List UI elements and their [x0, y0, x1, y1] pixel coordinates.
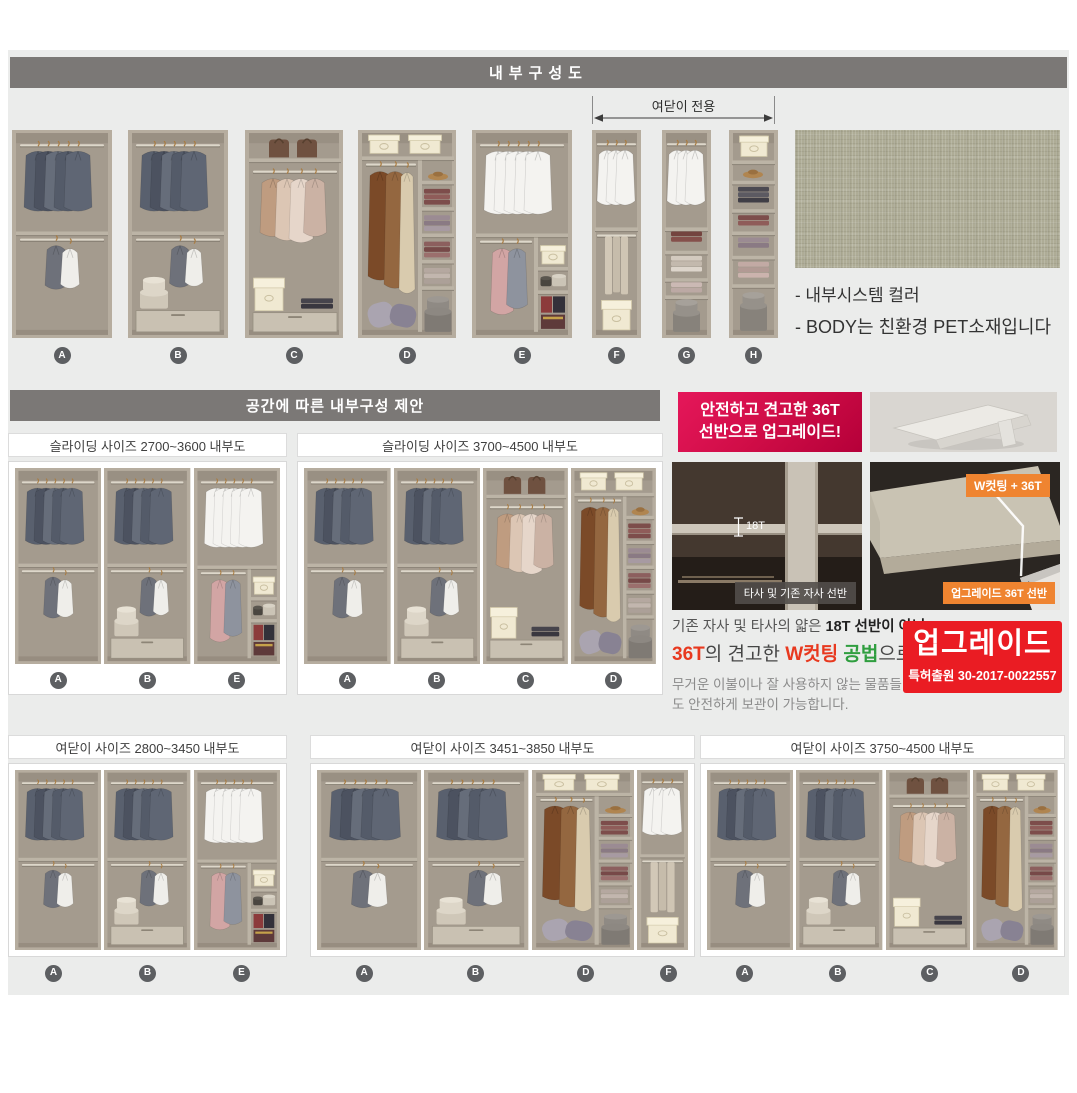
wardrobe-labels: ABCD — [700, 963, 1065, 983]
proposal-title: 여닫이 사이즈 2800~3450 내부도 — [8, 735, 287, 759]
desc-note: 무거운 이불이나 잘 사용하지 않는 물품들도 안전하게 보관이 가능합니다. — [672, 675, 904, 714]
unit-label-A: A — [356, 965, 373, 982]
unit-label-B: B — [139, 965, 156, 982]
section-header-internal-config: 내부구성도 — [10, 57, 1067, 88]
unit-label-B: B — [467, 965, 484, 982]
wardrobe-unit-A — [15, 468, 101, 664]
wcutting-badge: W컷팅 + 36T — [966, 474, 1050, 497]
swatch-note-body: - BODY는 친환경 PET소재입니다 — [795, 313, 1051, 339]
wardrobe-unit-D — [532, 770, 634, 950]
section-header-proposal-label: 공간에 따른 내부구성 제안 — [246, 395, 424, 416]
unit-label-E: E — [228, 672, 245, 689]
desc-segment: W컷팅 — [785, 644, 838, 665]
new-shelf-caption: 업그레이드 36T 선반 — [943, 582, 1055, 604]
unit-label-F: F — [660, 965, 677, 982]
unit-label-B: B — [170, 347, 187, 364]
unit-label-cell: A — [700, 963, 790, 983]
desc-segment: 36T — [672, 644, 705, 665]
wardrobe-unit-B — [104, 770, 190, 950]
annotation-tick-right — [774, 96, 775, 124]
unit-label-D: D — [399, 347, 416, 364]
upgrade-banner-line2: 선반으로 업그레이드! — [699, 422, 841, 444]
wardrobe-unit-D — [358, 130, 456, 338]
section-header-proposal: 공간에 따른 내부구성 제안 — [10, 390, 660, 421]
proposal-body: ABCD — [297, 461, 663, 695]
desc-segment: 의 견고한 — [705, 644, 785, 665]
wardrobe-unit-B — [796, 770, 882, 950]
proposal-body: ABE — [8, 461, 287, 695]
interior-color-swatch — [795, 130, 1060, 268]
unit-label-E: E — [233, 965, 250, 982]
shelf-bracket-photo — [870, 392, 1057, 452]
unit-label-A: A — [339, 672, 356, 689]
proposal-title: 슬라이딩 사이즈 2700~3600 내부도 — [8, 433, 287, 457]
unit-label-A: A — [54, 347, 71, 364]
unit-label-cell: D — [571, 672, 656, 689]
unit-label-C: C — [921, 965, 938, 982]
unit-label-cell: B — [104, 672, 190, 689]
upgrade-description: 기존 자사 및 타사의 얇은 18T 선반이 아닌 36T의 견고한 W컷팅 공… — [672, 615, 904, 714]
wardrobe-labels: ABE — [8, 963, 287, 983]
new-shelf-photo: W컷팅 + 36T 업그레이드 36T 선반 — [870, 462, 1060, 610]
unit-label-cell: F — [642, 963, 695, 983]
annotation-tick-left — [592, 96, 593, 124]
unit-label-cell: B — [394, 672, 481, 689]
unit-label-cell: A — [15, 672, 101, 689]
unit-label-cell: D — [533, 963, 639, 983]
wardrobe-unit-F — [592, 130, 641, 338]
proposal-body — [310, 763, 695, 957]
unit-label-cell: A — [8, 963, 99, 983]
patent-number: 특허출원 30-2017-0022557 — [908, 665, 1056, 684]
wardrobe-labels: ABDF — [310, 963, 695, 983]
unit-label-cell: B — [793, 963, 883, 983]
unit-label-B: B — [428, 672, 445, 689]
wardrobe-composite — [304, 468, 656, 664]
wardrobe-unit-E — [472, 130, 572, 338]
unit-label-A: A — [736, 965, 753, 982]
wardrobe-labels: ABCD — [304, 664, 656, 696]
unit-label-cell: E — [194, 672, 280, 689]
catalog-page: 내부구성도 여닫이 전용 ABCDEFGH - 내부시스템 컬러 - BODY는… — [0, 0, 1077, 1093]
wardrobe-unit-A — [15, 770, 101, 950]
double-arrow-icon — [594, 112, 773, 124]
old-shelf-photo: 18T 타사 및 기존 자사 선반 — [672, 462, 862, 610]
unit-label-cell: A — [304, 672, 391, 689]
wardrobe-unit-A — [304, 468, 391, 664]
upgrade-banner: 안전하고 견고한 36T 선반으로 업그레이드! — [678, 392, 862, 452]
section-header-internal-config-label: 내부구성도 — [489, 62, 588, 83]
wardrobe-unit-D — [973, 770, 1058, 950]
unit-label-cell: A — [310, 963, 418, 983]
wardrobe-composite — [15, 770, 280, 950]
unit-label-E: E — [514, 347, 531, 364]
unit-label-D: D — [1012, 965, 1029, 982]
desc-segment: 기존 자사 및 타사의 얇은 — [672, 619, 826, 635]
upgrade-banner-line1: 안전하고 견고한 36T — [700, 400, 840, 422]
unit-label-A: A — [45, 965, 62, 982]
wardrobe-unit-E — [194, 468, 280, 664]
proposal-title: 여닫이 사이즈 3451~3850 내부도 — [310, 735, 695, 759]
wardrobe-labels: ABE — [15, 664, 280, 696]
wardrobe-unit-A — [12, 130, 112, 338]
swatch-note-color: - 내부시스템 컬러 — [795, 281, 1051, 306]
unit-label-B: B — [139, 672, 156, 689]
unit-label-cell: B — [102, 963, 193, 983]
unit-label-cell: C — [483, 672, 568, 689]
unit-label-G: G — [678, 347, 695, 364]
unit-label-cell: C — [886, 963, 974, 983]
unit-label-C: C — [286, 347, 303, 364]
unit-label-F: F — [608, 347, 625, 364]
proposal-body — [8, 763, 287, 957]
unit-label-cell: B — [421, 963, 529, 983]
proposal-title: 슬라이딩 사이즈 3700~4500 내부도 — [297, 433, 663, 457]
unit-label-cell: E — [196, 963, 287, 983]
unit-label-D: D — [605, 672, 622, 689]
proposal-body — [700, 763, 1065, 957]
wardrobe-composite — [707, 770, 1058, 950]
wardrobe-unit-B — [104, 468, 190, 664]
wardrobe-unit-C — [245, 130, 343, 338]
patent-box: 업그레이드 특허출원 30-2017-0022557 — [903, 621, 1062, 693]
wardrobe-unit-D — [571, 468, 656, 664]
wardrobe-unit-A — [707, 770, 793, 950]
desc-segment: 공법 — [843, 644, 878, 665]
unit-label-D: D — [577, 965, 594, 982]
wardrobe-composite — [15, 468, 280, 664]
proposal-title: 여닫이 사이즈 3750~4500 내부도 — [700, 735, 1065, 759]
wardrobe-unit-F — [637, 770, 688, 950]
unit-label-B: B — [829, 965, 846, 982]
shelf-bracket-illustration — [870, 392, 1057, 452]
desc-line1: 기존 자사 및 타사의 얇은 18T 선반이 아닌 — [672, 615, 904, 636]
unit-label-C: C — [517, 672, 534, 689]
swatch-notes: - 내부시스템 컬러 - BODY는 친환경 PET소재입니다 — [795, 281, 1051, 339]
unit-label-H: H — [745, 347, 762, 364]
wardrobe-composite — [317, 770, 688, 950]
wardrobe-unit-B — [394, 468, 481, 664]
unit-label-A: A — [50, 672, 67, 689]
wardrobe-unit-G — [662, 130, 711, 338]
patent-title: 업그레이드 — [913, 630, 1051, 659]
desc-line2: 36T의 견고한 W컷팅 공법으로 — [672, 639, 904, 666]
measure-18t-label: 18T — [746, 520, 765, 532]
wardrobe-unit-C — [483, 468, 568, 664]
wardrobe-unit-B — [128, 130, 228, 338]
old-shelf-caption: 타사 및 기존 자사 선반 — [735, 582, 856, 604]
wardrobe-unit-B — [424, 770, 528, 950]
wardrobe-unit-E — [194, 770, 280, 950]
wardrobe-unit-A — [317, 770, 421, 950]
wardrobe-unit-C — [886, 770, 971, 950]
unit-label-cell: D — [977, 963, 1065, 983]
wardrobe-unit-H — [729, 130, 778, 338]
